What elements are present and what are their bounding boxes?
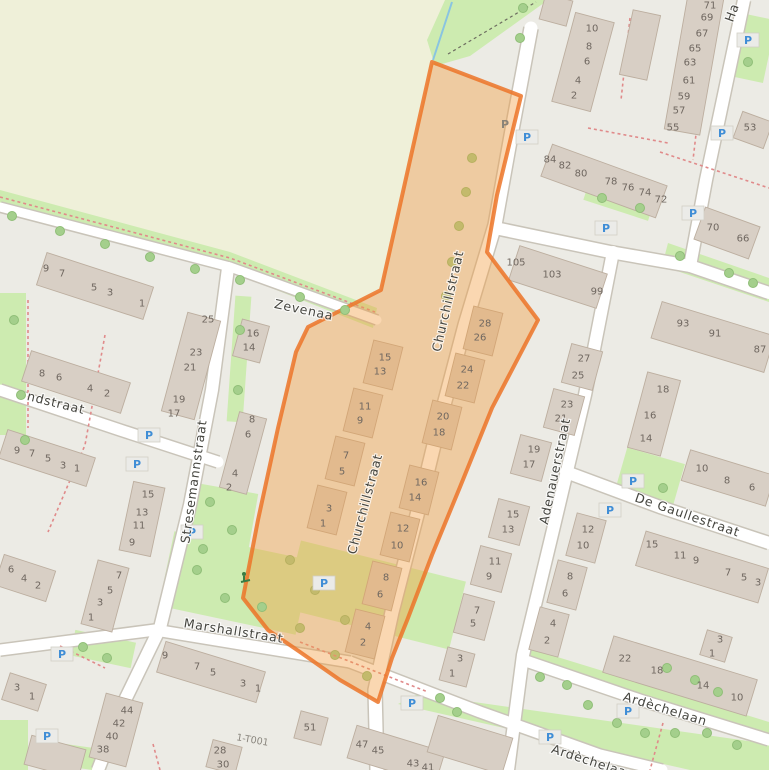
tree-icon <box>236 276 245 285</box>
house-number: 69 <box>701 13 714 24</box>
house-number: 59 <box>678 92 691 103</box>
tree-icon <box>725 269 734 278</box>
tree-icon <box>536 673 545 682</box>
house-number: 14 <box>697 681 710 692</box>
house-number: 7 <box>194 662 200 673</box>
tree-icon <box>676 252 685 261</box>
house-number: 1 <box>88 613 94 624</box>
tree-icon <box>519 4 528 13</box>
tree-icon <box>749 279 758 288</box>
house-number: 53 <box>744 123 757 134</box>
house-number: 80 <box>575 169 588 180</box>
house-number: 38 <box>97 745 110 756</box>
tree-icon <box>21 436 30 445</box>
house-number: 14 <box>409 493 422 504</box>
house-number: 51 <box>304 723 317 734</box>
house-number: 8 <box>39 369 45 380</box>
house-number: 10 <box>577 541 590 552</box>
tree-icon <box>146 253 155 262</box>
house-number: 28 <box>214 746 227 757</box>
house-number: 8 <box>567 572 573 583</box>
parking-icon: P <box>523 131 531 144</box>
house-number: 7 <box>343 451 349 462</box>
house-number: 63 <box>684 58 697 69</box>
house-number: 2 <box>360 638 366 649</box>
house-number: 5 <box>91 283 97 294</box>
house-number: 9 <box>14 446 20 457</box>
tree-icon <box>221 594 230 603</box>
house-number: 15 <box>507 510 520 521</box>
house-number: 26 <box>474 333 487 344</box>
tree-icon <box>613 719 622 728</box>
parking-icon: P <box>629 475 637 488</box>
tree-icon <box>598 194 607 203</box>
tree-icon <box>341 306 350 315</box>
house-number: 10 <box>391 541 404 552</box>
house-number: 21 <box>184 363 197 374</box>
house-number: 4 <box>87 384 93 395</box>
house-number: 15 <box>379 353 392 364</box>
house-number: 6 <box>8 565 14 576</box>
house-number: 20 <box>437 412 450 423</box>
house-number: 45 <box>372 746 385 757</box>
house-number: 61 <box>683 76 696 87</box>
tree-icon <box>663 664 672 673</box>
house-number: 10 <box>696 464 709 475</box>
house-number: 27 <box>578 354 591 365</box>
house-number: 40 <box>106 732 119 743</box>
house-number: 4 <box>575 76 581 87</box>
house-number: 7 <box>116 571 122 582</box>
house-number: 2 <box>544 636 550 647</box>
house-number: 9 <box>129 538 135 549</box>
house-number: 5 <box>210 668 216 679</box>
parking-icon: P <box>624 705 632 718</box>
house-number: 18 <box>433 428 446 439</box>
house-number: 4 <box>365 622 371 633</box>
tree-icon <box>8 212 17 221</box>
house-number: 2 <box>571 91 577 102</box>
house-number: 2 <box>35 581 41 592</box>
house-number: 5 <box>107 586 113 597</box>
house-number: 47 <box>356 740 369 751</box>
house-number: 1 <box>320 519 326 530</box>
parking-icon: P <box>43 730 51 743</box>
house-number: 3 <box>107 288 113 299</box>
house-number: 23 <box>190 348 203 359</box>
house-number: 5 <box>470 619 476 630</box>
house-number: 13 <box>136 508 149 519</box>
house-number: 5 <box>741 573 747 584</box>
map-viewport[interactable]: PPPPPPPPPPPPPPPPP 1086427169676563615957… <box>0 0 769 770</box>
house-number: 105 <box>506 258 525 269</box>
tree-icon <box>193 566 202 575</box>
house-number: 6 <box>584 57 590 68</box>
tree-icon <box>191 265 200 274</box>
house-number: 9 <box>357 416 363 427</box>
house-number: 12 <box>397 524 410 535</box>
house-number: 13 <box>374 367 387 378</box>
house-number: 15 <box>646 540 659 551</box>
parking-icon: P <box>546 731 554 744</box>
house-number: 19 <box>528 445 541 456</box>
tree-icon <box>199 545 208 554</box>
parking-icon: P <box>133 458 141 471</box>
house-number: 9 <box>486 572 492 583</box>
house-number: 1 <box>709 649 715 660</box>
house-number: 18 <box>651 666 664 677</box>
house-number: 55 <box>667 123 680 134</box>
tree-icon <box>636 204 645 213</box>
house-number: 99 <box>591 287 604 298</box>
tree-icon <box>258 603 267 612</box>
tree-icon <box>659 484 668 493</box>
tree-icon <box>10 316 19 325</box>
house-number: 103 <box>542 270 561 281</box>
house-number: 8 <box>383 573 389 584</box>
house-number: 1 <box>255 684 261 695</box>
tree-icon <box>103 654 112 663</box>
house-number: 57 <box>673 106 686 117</box>
tree-icon <box>733 741 742 750</box>
house-number: 6 <box>377 590 383 601</box>
house-number: 1 <box>449 669 455 680</box>
house-number: 6 <box>56 373 62 384</box>
house-number: 2 <box>104 389 110 400</box>
house-number: 71 <box>704 1 717 12</box>
house-number: 10 <box>586 24 599 35</box>
house-number: 43 <box>407 759 420 770</box>
house-number: 9 <box>43 264 49 275</box>
house-number: 6 <box>562 589 568 600</box>
tree-icon <box>234 386 243 395</box>
house-number: 70 <box>707 223 720 234</box>
house-number: 11 <box>489 557 502 568</box>
house-number: 6 <box>749 483 755 494</box>
house-number: 5 <box>45 454 51 465</box>
house-number: 41 <box>422 763 435 770</box>
house-number: 67 <box>696 29 709 40</box>
tree-icon <box>641 729 650 738</box>
house-number: 84 <box>544 155 557 166</box>
house-number: 23 <box>561 400 574 411</box>
house-number: 2 <box>226 483 232 494</box>
house-number: 7 <box>474 606 480 617</box>
house-number: 11 <box>674 551 687 562</box>
house-number: 7 <box>29 449 35 460</box>
house-number: 7 <box>725 568 731 579</box>
tree-icon <box>516 34 525 43</box>
house-number: 8 <box>586 42 592 53</box>
house-number: 16 <box>415 478 428 489</box>
house-number: 25 <box>572 371 585 382</box>
tree-icon <box>671 729 680 738</box>
tree-icon <box>228 526 237 535</box>
house-number: 76 <box>622 183 635 194</box>
house-number: 74 <box>639 188 652 199</box>
house-number: 6 <box>245 430 251 441</box>
parking-icon: P <box>689 207 697 220</box>
tree-icon <box>744 58 753 67</box>
house-number: 93 <box>677 319 690 330</box>
house-number: 8 <box>249 415 255 426</box>
house-number: 72 <box>655 195 668 206</box>
parking-icon: P <box>602 222 610 235</box>
parking-icon: P <box>320 577 328 590</box>
house-number: 19 <box>173 395 186 406</box>
house-number: 28 <box>479 319 492 330</box>
tree-icon <box>714 688 723 697</box>
house-number: 44 <box>121 706 134 717</box>
tree-icon <box>17 391 26 400</box>
house-number: 14 <box>640 434 653 445</box>
house-number: 17 <box>168 409 181 420</box>
house-number: 22 <box>457 381 470 392</box>
tree-icon <box>206 498 215 507</box>
house-number: 3 <box>97 598 103 609</box>
house-number: 7 <box>59 269 65 280</box>
house-number: 13 <box>502 525 515 536</box>
house-number: 1 <box>139 299 145 310</box>
map-canvas[interactable]: PPPPPPPPPPPPPPPPP 1086427169676563615957… <box>0 0 769 770</box>
house-number: 9 <box>162 651 168 662</box>
house-number: 3 <box>457 654 463 665</box>
house-number: 18 <box>657 385 670 396</box>
tree-icon <box>236 326 245 335</box>
house-number: 1 <box>29 692 35 703</box>
tree-icon <box>563 681 572 690</box>
house-number: 12 <box>582 525 595 536</box>
house-number: 42 <box>113 719 126 730</box>
house-number: 3 <box>326 504 332 515</box>
house-number: 78 <box>605 177 618 188</box>
house-number: 11 <box>359 402 372 413</box>
parking-icon: P <box>408 697 416 710</box>
house-number: 15 <box>142 490 155 501</box>
tree-icon <box>56 227 65 236</box>
tree-icon <box>101 240 110 249</box>
house-number: 10 <box>731 693 744 704</box>
house-number: 82 <box>559 161 572 172</box>
house-number: 4 <box>21 574 27 585</box>
house-number: 5 <box>339 467 345 478</box>
tree-icon <box>436 694 445 703</box>
house-number: 25 <box>202 315 215 326</box>
house-number: 9 <box>693 556 699 567</box>
house-number: 16 <box>644 411 657 422</box>
house-number: 17 <box>523 460 536 471</box>
house-number: 65 <box>689 44 702 55</box>
parking-icon: P <box>744 34 752 47</box>
house-number: 3 <box>60 461 66 472</box>
parking-icon: P <box>145 429 153 442</box>
house-number: 16 <box>247 329 260 340</box>
house-number: 30 <box>217 760 230 770</box>
parking-icon: P <box>58 648 66 661</box>
house-number: 66 <box>737 234 750 245</box>
house-number: 3 <box>755 578 761 589</box>
tree-icon <box>453 708 462 717</box>
house-number: 24 <box>461 365 474 376</box>
house-number: 1 <box>74 464 80 475</box>
house-number: 3 <box>717 635 723 646</box>
parking-icon: P <box>501 118 509 131</box>
parking-icon: P <box>718 127 726 140</box>
house-number: 87 <box>754 345 767 356</box>
house-number: 11 <box>133 521 146 532</box>
house-number: 3 <box>14 683 20 694</box>
house-number: 91 <box>709 329 722 340</box>
tree-icon <box>79 643 88 652</box>
house-number: 4 <box>550 619 556 630</box>
house-number: 14 <box>243 343 256 354</box>
parking-icon: P <box>606 504 614 517</box>
tree-icon <box>584 701 593 710</box>
house-number: 4 <box>232 469 238 480</box>
house-number: 8 <box>724 476 730 487</box>
house-number: 3 <box>240 679 246 690</box>
tree-icon <box>703 729 712 738</box>
house-number: 22 <box>619 654 632 665</box>
